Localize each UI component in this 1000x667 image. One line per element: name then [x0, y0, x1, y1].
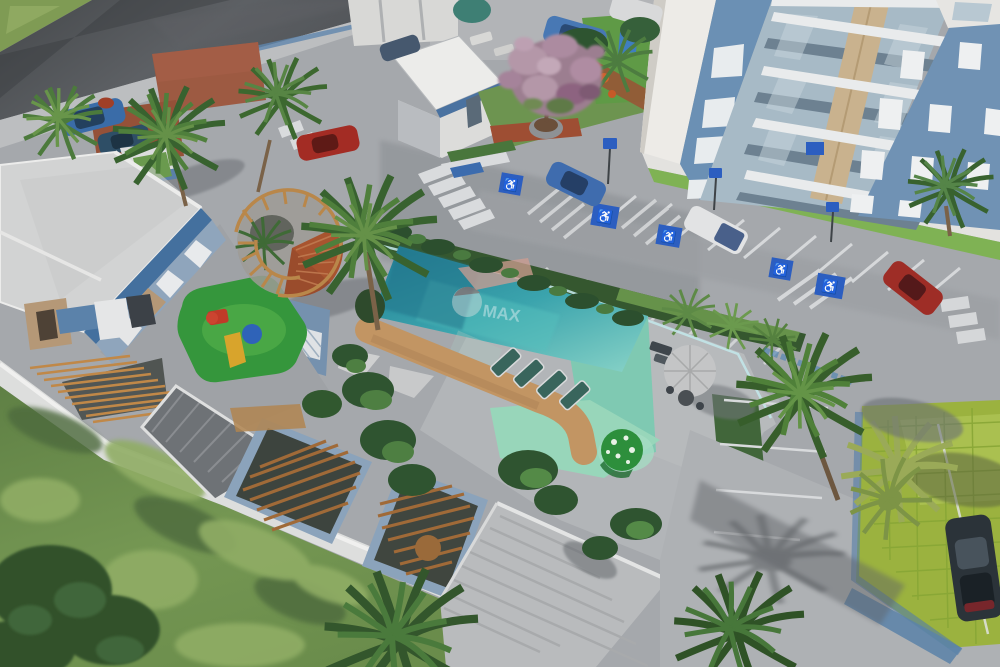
svg-text:♿: ♿ — [596, 208, 615, 226]
svg-text:♿: ♿ — [660, 229, 677, 245]
svg-text:♿: ♿ — [502, 177, 519, 193]
svg-text:♿: ♿ — [772, 262, 789, 278]
svg-text:♿: ♿ — [821, 278, 840, 296]
